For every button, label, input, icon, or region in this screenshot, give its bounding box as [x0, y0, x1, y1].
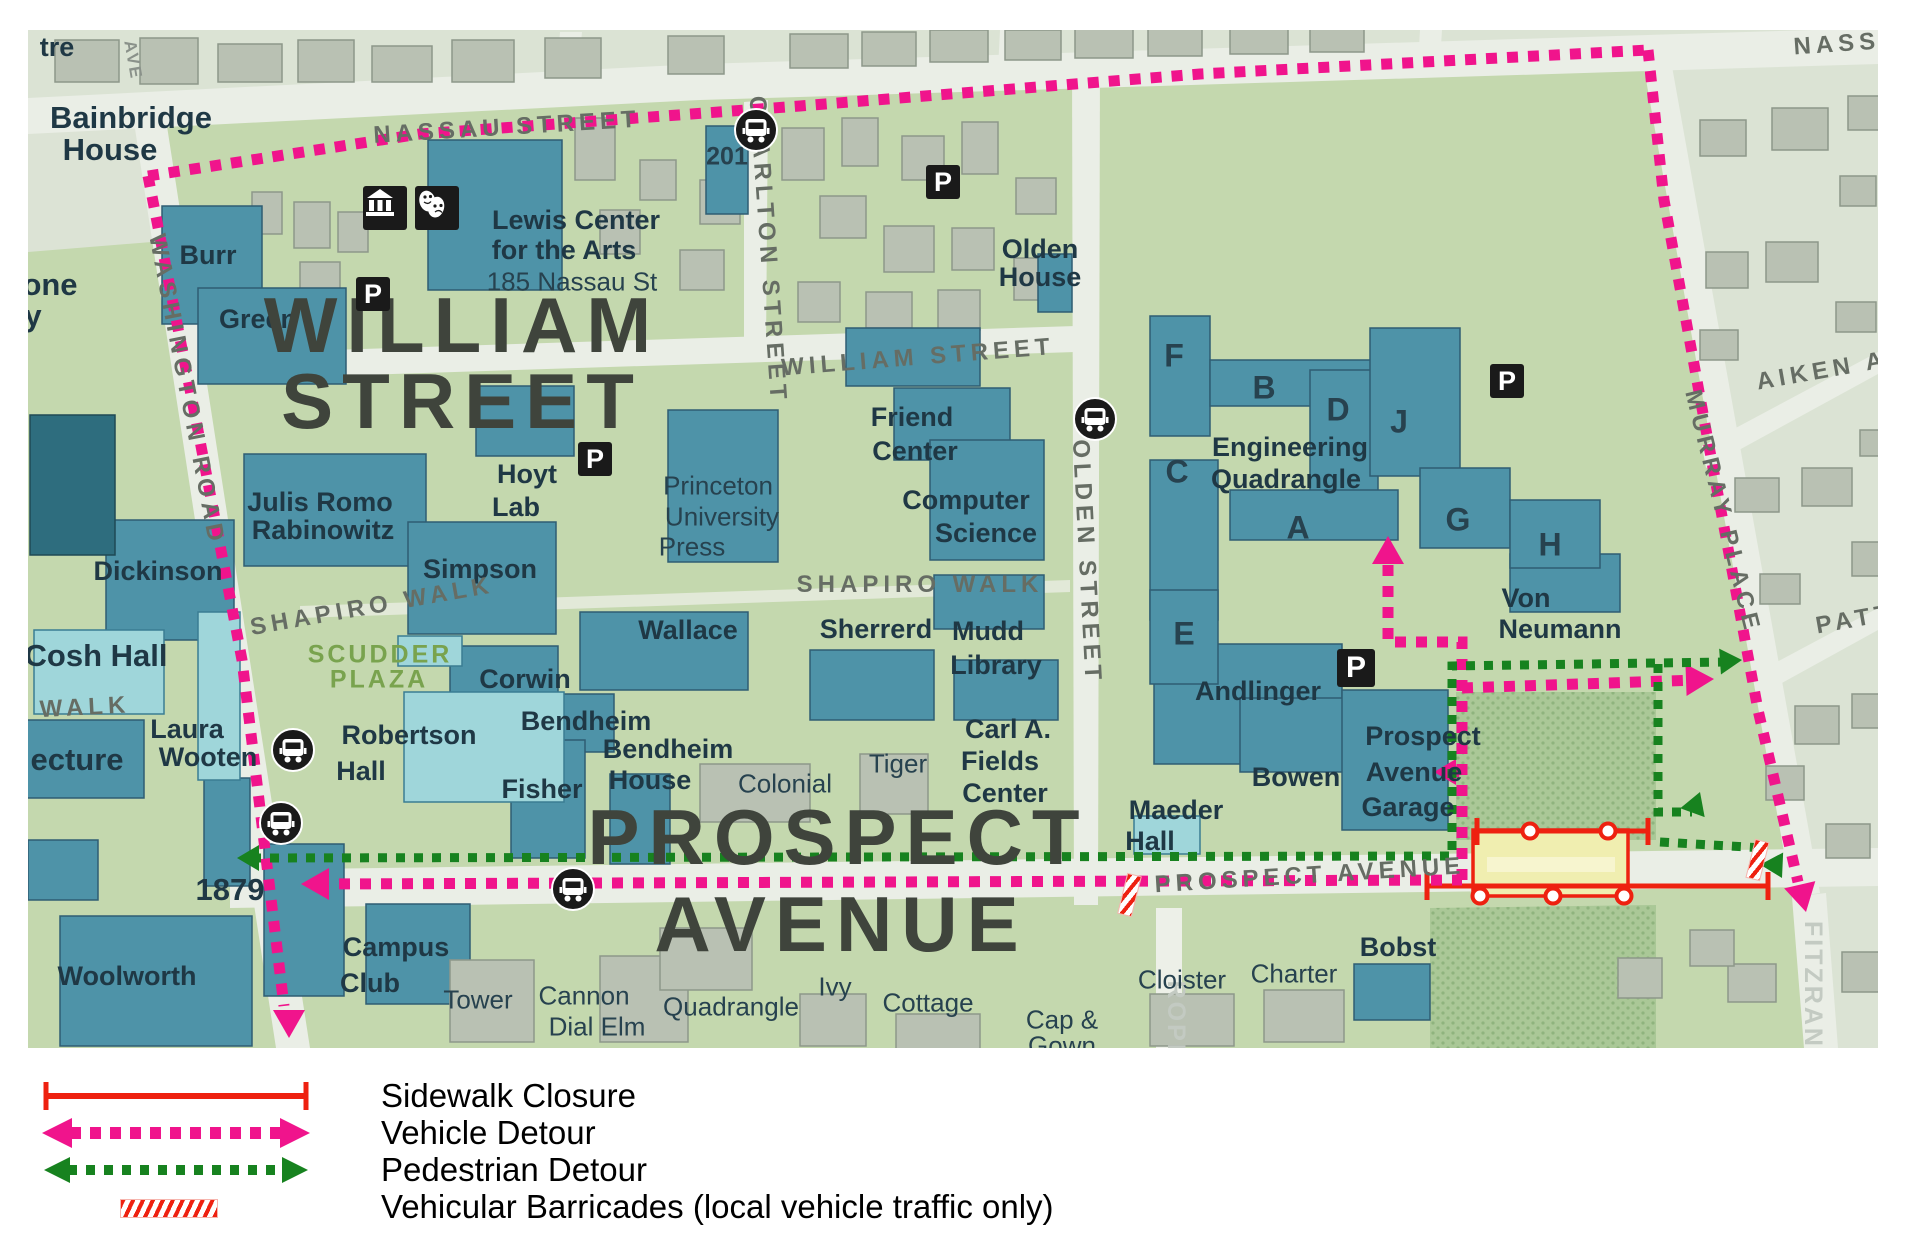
building	[204, 778, 250, 886]
building	[660, 928, 752, 990]
building	[1842, 952, 1878, 992]
building	[30, 415, 115, 555]
building	[1860, 430, 1878, 456]
building	[398, 636, 462, 666]
building	[1005, 30, 1061, 60]
legend-row-pedestrian-detour: Pedestrian Detour	[36, 1153, 1136, 1187]
building	[600, 210, 640, 254]
building	[450, 960, 534, 1042]
legend-label-sidewalk-closure: Sidewalk Closure	[381, 1077, 636, 1115]
building	[34, 630, 164, 714]
building	[860, 754, 928, 814]
road-olden-street	[1072, 54, 1100, 905]
building	[1148, 30, 1202, 56]
campus-detour-map-page: treAVEBainbridgeHouseNASSAU STREETNASSAL…	[0, 0, 1920, 1260]
building	[1735, 478, 1779, 512]
building	[1772, 108, 1828, 150]
building	[1836, 302, 1876, 332]
building	[575, 118, 615, 180]
building	[680, 250, 724, 290]
building	[866, 292, 912, 328]
building	[294, 202, 330, 248]
building	[1852, 694, 1878, 728]
building	[372, 46, 432, 82]
building	[1690, 930, 1734, 966]
building	[1134, 816, 1200, 854]
building	[1852, 542, 1878, 576]
building	[800, 994, 866, 1046]
building	[1510, 500, 1600, 568]
building	[1150, 590, 1218, 684]
building	[1706, 252, 1748, 288]
building	[1342, 690, 1448, 830]
building	[1802, 468, 1852, 506]
legend-row-sidewalk-closure: Sidewalk Closure	[36, 1079, 1136, 1113]
building	[1150, 316, 1210, 436]
building	[244, 454, 426, 566]
building	[782, 128, 824, 180]
building	[798, 282, 840, 322]
building	[810, 650, 934, 720]
map-canvas: treAVEBainbridgeHouseNASSAU STREETNASSAL…	[28, 30, 1878, 1048]
building	[1728, 964, 1776, 1002]
vehicle-detour-swatch	[36, 1116, 316, 1150]
legend-row-vehicular-barricades: Vehicular Barricades (local vehicle traf…	[36, 1190, 1436, 1224]
building	[668, 36, 724, 74]
building	[1240, 698, 1350, 772]
building	[842, 118, 878, 166]
building	[218, 44, 282, 82]
pedestrian-detour-swatch	[36, 1153, 316, 1187]
legend-row-vehicle-detour: Vehicle Detour	[36, 1116, 1136, 1150]
building	[790, 34, 848, 68]
building	[28, 720, 144, 798]
building	[1760, 574, 1800, 604]
building	[1150, 994, 1234, 1046]
building	[1016, 178, 1056, 214]
building	[1795, 706, 1839, 744]
building	[930, 440, 1044, 560]
building	[1618, 958, 1662, 998]
building	[902, 136, 944, 180]
building	[198, 288, 346, 384]
building	[452, 40, 514, 82]
building	[952, 228, 994, 270]
building	[862, 32, 916, 66]
building	[846, 328, 980, 386]
building	[404, 692, 564, 802]
building	[1264, 990, 1344, 1042]
building	[930, 30, 988, 62]
building	[1370, 328, 1460, 476]
building	[640, 160, 676, 200]
building	[1840, 176, 1876, 206]
building	[962, 122, 998, 174]
building	[60, 916, 252, 1046]
building	[668, 410, 778, 562]
building	[140, 38, 198, 84]
building	[1420, 468, 1510, 548]
building	[1766, 242, 1818, 282]
building	[298, 40, 354, 82]
sidewalk-closure-swatch	[36, 1079, 316, 1113]
building	[338, 212, 368, 252]
construction-lawn-north	[1456, 692, 1656, 840]
building	[1038, 254, 1072, 312]
building	[938, 290, 980, 330]
building	[700, 764, 810, 822]
building	[580, 612, 748, 690]
building	[476, 386, 574, 456]
building	[1826, 824, 1870, 858]
building	[934, 575, 1044, 629]
building	[610, 774, 670, 864]
building	[1354, 964, 1430, 1020]
building	[896, 1014, 980, 1048]
building	[1230, 490, 1398, 540]
building	[954, 660, 1058, 720]
building	[428, 140, 562, 290]
legend-label-vehicular-barricades: Vehicular Barricades (local vehicle traf…	[381, 1188, 1054, 1226]
building	[1700, 120, 1746, 156]
building	[1230, 30, 1288, 54]
building	[1848, 96, 1878, 130]
building	[820, 196, 866, 238]
building	[408, 522, 556, 634]
building	[1310, 30, 1364, 52]
building	[1310, 370, 1378, 500]
building	[1075, 30, 1133, 58]
legend-label-vehicle-detour: Vehicle Detour	[381, 1114, 596, 1152]
vehicular-barricades-swatch	[120, 1199, 218, 1218]
legend-label-pedestrian-detour: Pedestrian Detour	[381, 1151, 647, 1189]
building	[545, 38, 601, 78]
building	[55, 40, 119, 82]
building	[884, 226, 934, 272]
building	[1700, 330, 1738, 360]
building	[706, 126, 748, 214]
map-graphics	[28, 30, 1878, 1048]
building	[28, 840, 98, 900]
